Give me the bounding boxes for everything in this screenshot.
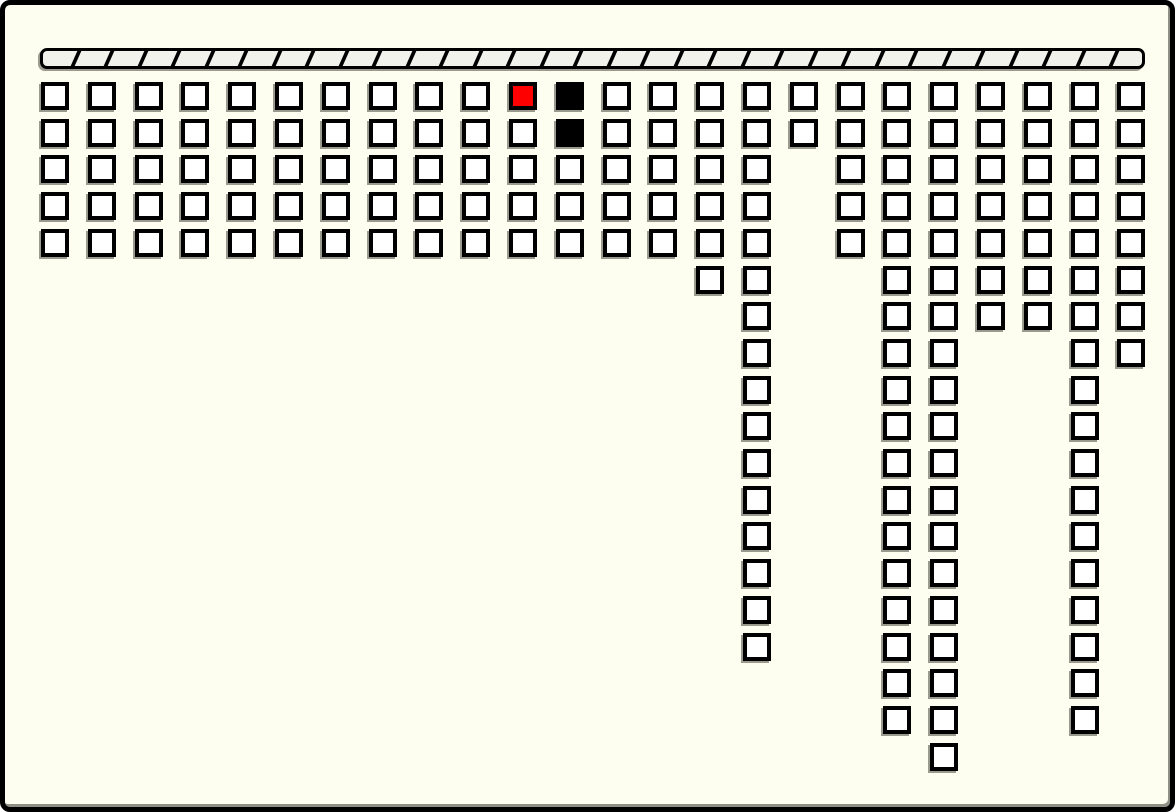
grid-cell[interactable] [1071, 596, 1099, 624]
grid-cell[interactable] [743, 486, 771, 514]
grid-cell[interactable] [930, 559, 958, 587]
grid-cell[interactable] [322, 192, 350, 220]
bar-stripe [1040, 48, 1053, 69]
grid-cell[interactable] [181, 82, 209, 110]
grid-cell[interactable] [649, 155, 677, 183]
grid-cell[interactable] [1071, 376, 1099, 404]
grid-cell[interactable] [930, 596, 958, 624]
bar-stripe [270, 48, 283, 69]
grid-cell[interactable] [88, 82, 116, 110]
grid-cell[interactable] [883, 559, 911, 587]
bar-stripe [672, 48, 685, 69]
grid-cell[interactable] [743, 522, 771, 550]
grid-cell[interactable] [883, 302, 911, 330]
bar-stripe [337, 48, 350, 69]
grid-cell[interactable] [883, 633, 911, 661]
grid-cell[interactable] [1024, 82, 1052, 110]
bar-stripe [69, 48, 82, 69]
grid-cell[interactable] [369, 229, 397, 257]
grid-cell[interactable] [88, 119, 116, 147]
grid-cell[interactable] [930, 633, 958, 661]
grid-cell[interactable] [1117, 339, 1145, 367]
grid-cell[interactable] [930, 155, 958, 183]
bar-stripe [437, 48, 450, 69]
grid-cell[interactable] [930, 229, 958, 257]
grid-cell[interactable] [930, 339, 958, 367]
bar-stripe [571, 48, 584, 69]
grid-cell[interactable] [930, 522, 958, 550]
grid-cell[interactable] [1071, 412, 1099, 440]
grid-cell[interactable] [883, 376, 911, 404]
grid-cell[interactable] [883, 486, 911, 514]
grid-cell[interactable] [930, 743, 958, 771]
grid-cell[interactable] [883, 192, 911, 220]
grid-cell[interactable] [41, 155, 69, 183]
grid-cell[interactable] [977, 302, 1005, 330]
grid-cell[interactable] [883, 596, 911, 624]
grid-cell[interactable] [135, 229, 163, 257]
bar-stripe [169, 48, 182, 69]
grid-cell[interactable] [41, 82, 69, 110]
grid-cell[interactable] [135, 82, 163, 110]
grid-cell[interactable] [88, 192, 116, 220]
grid-cell[interactable] [1071, 522, 1099, 550]
grid-cell[interactable] [603, 155, 631, 183]
grid-cell[interactable] [1117, 155, 1145, 183]
grid-cell[interactable] [509, 155, 537, 183]
grid-cell[interactable] [1071, 155, 1099, 183]
grid-cell[interactable] [1071, 339, 1099, 367]
grid-cell[interactable] [883, 522, 911, 550]
grid-cell[interactable] [1071, 559, 1099, 587]
grid-cell[interactable] [977, 229, 1005, 257]
grid-cell[interactable] [743, 119, 771, 147]
grid-cell[interactable] [369, 192, 397, 220]
grid-cell[interactable] [930, 706, 958, 734]
bar-stripe [839, 48, 852, 69]
grid-cell[interactable] [883, 669, 911, 697]
grid-cell[interactable] [462, 192, 490, 220]
grid-cell[interactable] [41, 229, 69, 257]
grid-cell[interactable] [275, 192, 303, 220]
grid-cell[interactable] [1071, 669, 1099, 697]
grid-cell[interactable] [977, 82, 1005, 110]
grid-cell[interactable] [275, 229, 303, 257]
grid-cell[interactable] [462, 229, 490, 257]
grid-cell[interactable] [369, 82, 397, 110]
grid-cell[interactable] [977, 192, 1005, 220]
bar-stripe [102, 48, 115, 69]
bar-stripe [705, 48, 718, 69]
grid-cell[interactable] [743, 155, 771, 183]
grid-cell[interactable] [883, 266, 911, 294]
grid-cell[interactable] [883, 339, 911, 367]
grid-cell[interactable] [743, 192, 771, 220]
grid-cell[interactable] [837, 192, 865, 220]
grid-cell[interactable] [837, 229, 865, 257]
grid-cell[interactable] [837, 82, 865, 110]
grid-cell[interactable] [1024, 229, 1052, 257]
bar-stripe [739, 48, 752, 69]
black-cell[interactable] [556, 119, 584, 147]
grid-cell[interactable] [1071, 706, 1099, 734]
grid-cell[interactable] [603, 82, 631, 110]
grid-cell[interactable] [369, 119, 397, 147]
bar-stripe [236, 48, 249, 69]
bar-stripe [906, 48, 919, 69]
grid-cell[interactable] [696, 82, 724, 110]
grid-cell[interactable] [556, 192, 584, 220]
grid-cell[interactable] [1071, 82, 1099, 110]
grid-cell[interactable] [322, 155, 350, 183]
grid-cell[interactable] [649, 82, 677, 110]
grid-cell[interactable] [743, 339, 771, 367]
grid-cell[interactable] [1024, 155, 1052, 183]
bar-stripe [772, 48, 785, 69]
grid-cell[interactable] [275, 155, 303, 183]
grid-cell[interactable] [603, 229, 631, 257]
bar-stripe [136, 48, 149, 69]
grid-cell[interactable] [696, 266, 724, 294]
grid-cell[interactable] [181, 192, 209, 220]
grid-cell[interactable] [1024, 192, 1052, 220]
grid-cell[interactable] [1071, 192, 1099, 220]
grid-cell[interactable] [1117, 302, 1145, 330]
grid-cell[interactable] [1071, 302, 1099, 330]
grid-cell[interactable] [228, 119, 256, 147]
grid-cell[interactable] [743, 559, 771, 587]
grid-cell[interactable] [696, 119, 724, 147]
grid-cell[interactable] [415, 155, 443, 183]
app-window [0, 0, 1175, 812]
grid-cell[interactable] [930, 449, 958, 477]
grid-cell[interactable] [1117, 82, 1145, 110]
grid-cell[interactable] [1117, 119, 1145, 147]
grid-cell[interactable] [883, 449, 911, 477]
grid-cell[interactable] [1071, 449, 1099, 477]
grid-cell[interactable] [837, 119, 865, 147]
grid-cell[interactable] [790, 82, 818, 110]
grid-cell[interactable] [1117, 192, 1145, 220]
grid-cell[interactable] [322, 119, 350, 147]
striped-bar [40, 48, 1145, 69]
grid-cell[interactable] [883, 155, 911, 183]
grid-cell[interactable] [462, 155, 490, 183]
grid-cell[interactable] [883, 706, 911, 734]
bar-stripe [873, 48, 886, 69]
grid-cell[interactable] [930, 376, 958, 404]
grid-cell[interactable] [883, 119, 911, 147]
grid-cell[interactable] [883, 412, 911, 440]
grid-cell[interactable] [415, 192, 443, 220]
bar-stripe [203, 48, 216, 69]
grid-cell[interactable] [930, 486, 958, 514]
bar-stripe [1074, 48, 1087, 69]
grid-cell[interactable] [743, 633, 771, 661]
grid-cell[interactable] [977, 155, 1005, 183]
grid-cell[interactable] [649, 229, 677, 257]
grid-cell[interactable] [509, 119, 537, 147]
grid-cell[interactable] [135, 119, 163, 147]
grid-cell[interactable] [322, 82, 350, 110]
grid-cell[interactable] [556, 155, 584, 183]
grid-cell[interactable] [930, 82, 958, 110]
grid-cell[interactable] [41, 192, 69, 220]
grid-cell[interactable] [462, 119, 490, 147]
bar-stripe [638, 48, 651, 69]
grid-cell[interactable] [228, 229, 256, 257]
grid-cell[interactable] [41, 119, 69, 147]
grid-cell[interactable] [415, 229, 443, 257]
grid-cell[interactable] [462, 82, 490, 110]
grid-cell[interactable] [556, 229, 584, 257]
grid-cell[interactable] [977, 119, 1005, 147]
grid-cell[interactable] [322, 229, 350, 257]
grid-cell[interactable] [1024, 119, 1052, 147]
grid-cell[interactable] [649, 119, 677, 147]
grid-cell[interactable] [1071, 229, 1099, 257]
grid-cell[interactable] [743, 412, 771, 440]
grid-cell[interactable] [603, 192, 631, 220]
grid-cell[interactable] [135, 155, 163, 183]
grid-cell[interactable] [509, 229, 537, 257]
grid-cell[interactable] [88, 229, 116, 257]
grid-cell[interactable] [743, 596, 771, 624]
grid-cell[interactable] [135, 192, 163, 220]
bar-stripe [806, 48, 819, 69]
bar-stripe [538, 48, 551, 69]
bar-stripe [1107, 48, 1120, 69]
grid-cell[interactable] [1117, 229, 1145, 257]
bar-stripe [404, 48, 417, 69]
grid-cell[interactable] [743, 449, 771, 477]
grid-cell[interactable] [883, 82, 911, 110]
grid-cell[interactable] [275, 119, 303, 147]
grid-cell[interactable] [181, 119, 209, 147]
grid-cell[interactable] [649, 192, 677, 220]
grid-cell[interactable] [696, 229, 724, 257]
grid-cell[interactable] [743, 266, 771, 294]
bar-stripe [973, 48, 986, 69]
bar-stripe [605, 48, 618, 69]
grid-cell[interactable] [883, 229, 911, 257]
bar-stripe [370, 48, 383, 69]
grid-cell[interactable] [275, 82, 303, 110]
grid-cell[interactable] [930, 266, 958, 294]
bar-stripe [940, 48, 953, 69]
red-cell[interactable] [509, 82, 537, 110]
grid-cell[interactable] [930, 669, 958, 697]
grid-cell[interactable] [228, 82, 256, 110]
grid-cell[interactable] [930, 412, 958, 440]
grid-cell[interactable] [1071, 486, 1099, 514]
grid-cell[interactable] [181, 155, 209, 183]
grid-cell[interactable] [743, 376, 771, 404]
bar-stripe [1007, 48, 1020, 69]
grid-cell[interactable] [88, 155, 116, 183]
grid-cell[interactable] [743, 302, 771, 330]
grid-cell[interactable] [415, 119, 443, 147]
grid-cell[interactable] [977, 266, 1005, 294]
grid-cell[interactable] [369, 155, 397, 183]
grid-cell[interactable] [696, 155, 724, 183]
bar-stripe [303, 48, 316, 69]
grid-cell[interactable] [1117, 266, 1145, 294]
grid-cell[interactable] [930, 302, 958, 330]
grid-cell[interactable] [228, 155, 256, 183]
grid-cell[interactable] [930, 192, 958, 220]
grid-cell[interactable] [743, 229, 771, 257]
grid-cell[interactable] [930, 119, 958, 147]
grid-cell[interactable] [1024, 266, 1052, 294]
black-cell[interactable] [556, 82, 584, 110]
bar-stripe [471, 48, 484, 69]
grid-cell[interactable] [1024, 302, 1052, 330]
grid-cell[interactable] [415, 82, 443, 110]
grid-cell[interactable] [743, 82, 771, 110]
grid-cell[interactable] [181, 229, 209, 257]
grid-cell[interactable] [603, 119, 631, 147]
grid-cell[interactable] [509, 192, 537, 220]
grid-cell[interactable] [1071, 266, 1099, 294]
grid-cell[interactable] [1071, 119, 1099, 147]
grid-cell[interactable] [1071, 633, 1099, 661]
grid-cell[interactable] [837, 155, 865, 183]
grid-cell[interactable] [696, 192, 724, 220]
bar-stripe [504, 48, 517, 69]
grid-cell[interactable] [228, 192, 256, 220]
grid-cell[interactable] [790, 119, 818, 147]
